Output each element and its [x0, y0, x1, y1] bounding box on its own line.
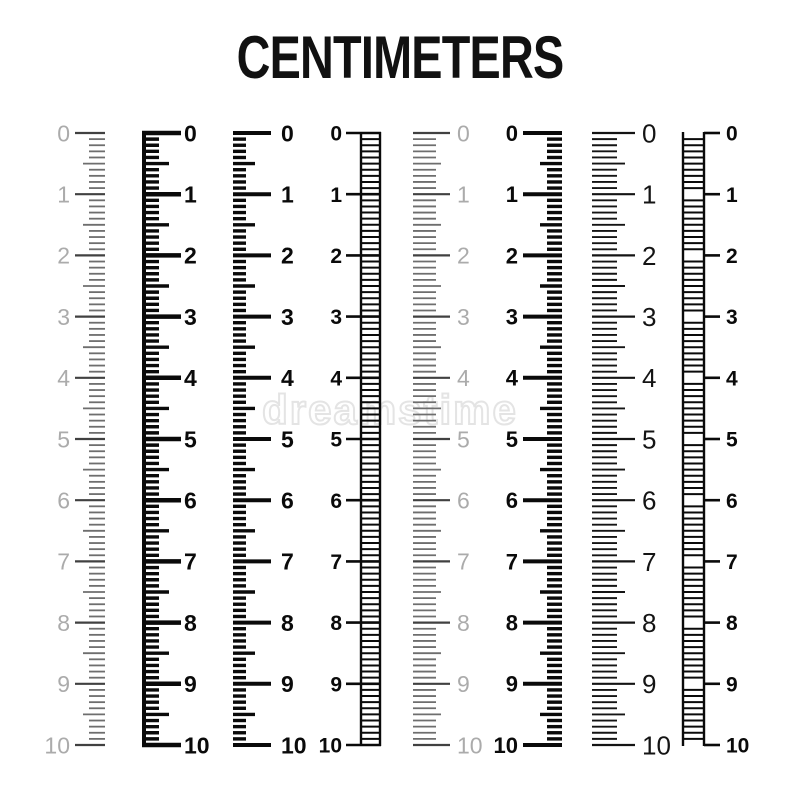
cm-label: 4 — [184, 365, 197, 391]
cm-label: 10 — [319, 735, 342, 758]
cm-label: 9 — [642, 669, 656, 699]
cm-label: 1 — [506, 182, 518, 207]
cm-label: 10 — [281, 732, 307, 758]
cm-label: 0 — [726, 123, 738, 146]
cm-label: 10 — [184, 732, 210, 758]
cm-label: 1 — [726, 184, 738, 207]
cm-label: 9 — [457, 671, 470, 697]
cm-label: 2 — [457, 243, 470, 269]
cm-label: 9 — [281, 671, 294, 697]
cm-label: 0 — [506, 121, 518, 146]
cm-label: 2 — [281, 243, 294, 269]
cm-label: 0 — [330, 123, 342, 146]
cm-label: 3 — [330, 306, 342, 329]
cm-label: 1 — [281, 181, 294, 207]
cm-label: 0 — [57, 120, 70, 146]
cm-label: 3 — [506, 305, 518, 330]
cm-label: 6 — [57, 487, 70, 513]
cm-label: 1 — [57, 181, 70, 207]
cm-label: 0 — [642, 118, 656, 148]
cm-label: 5 — [506, 427, 518, 452]
cm-label: 7 — [726, 551, 738, 574]
cm-label: 0 — [184, 120, 197, 146]
cm-label: 9 — [726, 673, 738, 696]
cm-label: 9 — [57, 671, 70, 697]
cm-label: 0 — [457, 120, 470, 146]
cm-label: 9 — [184, 671, 197, 697]
cm-label: 7 — [506, 549, 518, 574]
cm-label: 7 — [330, 551, 342, 574]
cm-label: 3 — [57, 304, 70, 330]
canvas: { "title": "CENTIMETERS", "watermark": "… — [0, 0, 800, 800]
cm-label: 7 — [184, 549, 197, 575]
cm-label: 3 — [281, 304, 294, 330]
cm-label: 1 — [184, 181, 197, 207]
cm-label: 5 — [642, 424, 656, 454]
cm-label: 4 — [457, 365, 470, 391]
cm-label: 6 — [506, 488, 518, 513]
cm-label: 5 — [184, 426, 197, 452]
cm-label: 5 — [281, 426, 294, 452]
cm-label: 7 — [642, 547, 656, 577]
cm-label: 10 — [44, 732, 70, 758]
cm-label: 4 — [642, 363, 656, 393]
ruler-4-ladder-labels-left: 012345678910 — [319, 123, 381, 758]
cm-label: 7 — [57, 549, 70, 575]
ruler-2-baseline-bold-labels-right: 012345678910 — [142, 120, 210, 758]
cm-label: 6 — [726, 490, 738, 513]
cm-label: 5 — [330, 429, 342, 452]
cm-label: 8 — [184, 610, 197, 636]
cm-label: 6 — [281, 487, 294, 513]
cm-label: 4 — [726, 367, 738, 390]
cm-label: 7 — [281, 549, 294, 575]
cm-label: 0 — [281, 120, 294, 146]
cm-label: 3 — [184, 304, 197, 330]
cm-label: 8 — [726, 612, 738, 635]
cm-label: 4 — [506, 366, 519, 391]
ruler-6-bold-ticks-labels-left: 012345678910 — [494, 121, 562, 758]
cm-label: 4 — [57, 365, 70, 391]
cm-label: 5 — [457, 426, 470, 452]
cm-label: 10 — [726, 735, 749, 758]
cm-label: 2 — [506, 243, 518, 268]
ruler-7-thin-black-labels-right: 012345678910 — [592, 118, 671, 760]
cm-label: 3 — [457, 304, 470, 330]
cm-label: 6 — [330, 490, 342, 513]
cm-label: 3 — [642, 302, 656, 332]
cm-label: 3 — [726, 306, 738, 329]
cm-label: 10 — [642, 730, 671, 760]
cm-label: 8 — [506, 611, 518, 636]
cm-label: 7 — [457, 549, 470, 575]
cm-label: 6 — [184, 487, 197, 513]
cm-label: 5 — [57, 426, 70, 452]
cm-label: 8 — [281, 610, 294, 636]
ruler-1-thin-gray-labels-left: 012345678910 — [44, 120, 105, 758]
cm-label: 1 — [642, 180, 656, 210]
ruler-8-ladder-labels-right: 012345678910 — [683, 123, 749, 758]
cm-label: 9 — [330, 673, 342, 696]
cm-label: 8 — [642, 608, 656, 638]
cm-label: 2 — [184, 243, 197, 269]
cm-label: 1 — [330, 184, 342, 207]
cm-label: 8 — [330, 612, 342, 635]
cm-label: 2 — [330, 245, 342, 268]
cm-label: 2 — [726, 245, 738, 268]
cm-label: 6 — [642, 486, 656, 516]
cm-label: 10 — [457, 732, 483, 758]
cm-label: 9 — [506, 672, 518, 697]
cm-label: 2 — [57, 243, 70, 269]
ruler-5-thin-gray-labels-right: 012345678910 — [413, 120, 483, 758]
cm-label: 5 — [726, 429, 738, 452]
cm-label: 2 — [642, 241, 656, 271]
rulers-graphic: 0123456789100123456789100123456789100123… — [0, 0, 800, 800]
cm-label: 4 — [281, 365, 294, 391]
cm-label: 6 — [457, 487, 470, 513]
cm-label: 8 — [457, 610, 470, 636]
cm-label: 8 — [57, 610, 70, 636]
ruler-3-bold-ticks-labels-right: 012345678910 — [233, 120, 307, 758]
cm-label: 10 — [494, 733, 518, 758]
cm-label: 1 — [457, 181, 470, 207]
cm-label: 4 — [330, 367, 342, 390]
